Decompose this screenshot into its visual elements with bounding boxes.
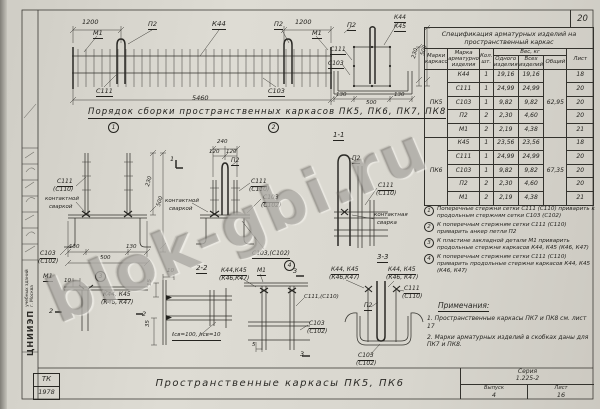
weight-all: 4,60: [518, 110, 543, 124]
item-qty: 1: [479, 83, 493, 97]
weight-all: 19,16: [518, 69, 543, 83]
weight-one: 9,82: [493, 164, 518, 178]
item-sheet: 20: [567, 178, 594, 192]
drawing-label: М1: [257, 268, 266, 276]
series-value: 1.225-2: [516, 376, 539, 383]
assembly-order-heading: Порядок сборки пространственных каркасов…: [88, 108, 446, 119]
spec-row: М122,194,3821: [425, 191, 594, 205]
item-sheet: 21: [567, 123, 594, 137]
item-mark: П2: [448, 110, 480, 124]
drawing-label: (К46, К47): [101, 300, 133, 306]
item-sheet: 21: [567, 191, 594, 205]
spec-row: ПК6К45123,5623,5667,3518: [425, 137, 594, 151]
drawing-label: П2: [352, 156, 360, 164]
drawing-label: П2: [231, 158, 239, 166]
item-mark: К45: [448, 137, 480, 151]
drawing-label: С103,(С102): [252, 251, 290, 259]
weight-one: 9,82: [493, 96, 518, 110]
drawing-label: С103: [328, 61, 344, 69]
drawing-label: 5: [252, 343, 256, 349]
drawing-label: (С110): [249, 187, 269, 193]
item-sheet: 20: [567, 83, 594, 97]
drawing-label: сваркой: [169, 207, 192, 213]
drawing-label: К45: [394, 24, 406, 32]
weight-all: 4,60: [518, 178, 543, 192]
spec-table-title: Спецификация арматурных изделий на прост…: [425, 28, 594, 49]
drawing-label: 130: [394, 93, 405, 99]
item-qty: 2: [479, 191, 493, 205]
org-stamp: ЦНИИЭП учебных зданий г. Москва: [23, 260, 38, 356]
item-mark: С103: [448, 164, 480, 178]
drawing-label: 15: [148, 279, 154, 286]
spec-row: ПК5К44119,1619,1662,9518: [425, 69, 594, 83]
drawing-label: 130: [126, 245, 137, 251]
drawing-label: 500: [100, 256, 111, 262]
drawing-label: (С110): [402, 294, 422, 300]
callout-number: 4: [424, 254, 434, 264]
col-frame-marks: Марки каркасов: [425, 49, 448, 70]
drawing-label: (С102): [38, 259, 58, 265]
drawing-label: 2: [142, 311, 146, 318]
tk-year: 1978: [34, 387, 59, 399]
drawing-label: ℓсв=100, hсв=10: [172, 333, 221, 341]
item-mark: С111: [448, 151, 480, 165]
item-qty: 1: [479, 151, 493, 165]
tk-stamp: ТК 1978: [33, 373, 60, 400]
drawing-label: П2: [274, 21, 283, 30]
item-mark: К44: [448, 69, 480, 83]
tk-label: ТК: [34, 374, 59, 387]
item-sheet: 20: [567, 151, 594, 165]
col-qty: Кол. шт.: [479, 49, 493, 70]
step-2-number: 2: [268, 122, 279, 133]
weight-all: 9,82: [518, 164, 543, 178]
weight-one: 23,56: [493, 137, 518, 151]
spec-row: П222,304,6020: [425, 110, 594, 124]
callout-text: К поперечным стержням сетки С111 (С110) …: [437, 222, 596, 236]
weld-callout: 1Поперечные стержни сетки С111 (С110) пр…: [424, 206, 596, 220]
drawing-label: (С110): [53, 187, 73, 193]
drawing-label: (К46, К47): [386, 275, 418, 281]
drawing-label: 1200: [82, 19, 99, 26]
drawing-label: 2: [49, 308, 53, 315]
issue-value: 4: [492, 391, 496, 399]
drawing-label: К44: [394, 15, 406, 23]
item-mark: М1: [448, 191, 480, 205]
col-sheet: Лист: [567, 49, 594, 70]
group-total-weight: 67,35: [544, 137, 567, 205]
drawing-label: (К46,К47): [329, 275, 359, 281]
item-qty: 1: [479, 69, 493, 83]
spec-row: П222,304,6020: [425, 178, 594, 192]
weld-callout: 2К поперечным стержням сетки С111 (С110)…: [424, 222, 596, 236]
drawing-label: 240: [217, 140, 228, 146]
org-name: ЦНИИЭП: [26, 310, 35, 356]
item-sheet: 20: [567, 110, 594, 124]
col-weight-total: Общий: [544, 56, 567, 69]
item-sheet: 20: [567, 164, 594, 178]
drawing-label: 130: [69, 245, 80, 251]
weight-one: 2,19: [493, 123, 518, 137]
weld-callout: 4К поперечным стержням сетки С111 (С110)…: [424, 254, 596, 275]
drawing-label: М1: [93, 30, 103, 39]
drawing-label: 120: [226, 150, 237, 156]
notes-list: 1. Пространственные каркасы ПК7 и ПК8 см…: [427, 315, 589, 352]
drawing-label: С111: [330, 47, 346, 55]
drawing-label: контактной: [165, 199, 199, 205]
item-mark: М1: [448, 123, 480, 137]
item-mark: С103: [448, 96, 480, 110]
frame-mark: ПК6: [425, 137, 448, 205]
section-3-3-label: 3-3: [377, 254, 388, 263]
weld-callout: 3К пластине закладной детали М1 приварит…: [424, 238, 596, 252]
drawing-sheet: 1200М1П2К44П21200М1С111С1035460П2К44К45С…: [0, 0, 600, 409]
note-item: 2. Марки арматурных изделий в скобках да…: [427, 334, 589, 350]
drawing-label: С103: [268, 88, 285, 97]
spec-row: С111124,9924,9920: [425, 83, 594, 97]
spec-row: С10319,829,8220: [425, 164, 594, 178]
item-qty: 2: [479, 123, 493, 137]
callout-number: 2: [424, 222, 434, 232]
org-line3: г. Москва: [31, 269, 36, 307]
weight-all: 4,38: [518, 191, 543, 205]
item-sheet: 20: [567, 96, 594, 110]
spec-table-body: ПК5К44119,1619,1662,9518С111124,9924,992…: [425, 69, 594, 205]
drawing-label: П2: [148, 21, 157, 30]
weight-one: 2,30: [493, 110, 518, 124]
callout-number: 3: [424, 238, 434, 248]
item-sheet: 18: [567, 137, 594, 151]
drawing-label: 3: [293, 268, 297, 275]
drawing-label: сварка: [377, 221, 397, 227]
drawing-label: П2: [347, 22, 356, 31]
weight-all: 9,82: [518, 96, 543, 110]
item-mark: С111: [448, 83, 480, 97]
item-qty: 1: [479, 96, 493, 110]
drawing-label: 3: [300, 351, 304, 358]
col-weight-one: Одного изделия: [493, 56, 518, 69]
col-weight-all: Всех изделий: [518, 56, 543, 69]
drawing-label: 1200: [295, 19, 312, 26]
drawing-label: (С110): [376, 191, 396, 197]
callout-text: К пластине закладной детали М1 приварить…: [437, 238, 596, 252]
drawing-label: сваркой: [49, 205, 72, 211]
notes-title: Примечания:: [438, 301, 489, 312]
drawing-label: (С102): [356, 361, 376, 367]
spec-row: М122,194,3821: [425, 123, 594, 137]
spec-table-head: Спецификация арматурных изделий на прост…: [425, 28, 594, 70]
drawing-label: 120: [209, 150, 220, 156]
drawing-label: (С102): [307, 329, 327, 335]
drawing-label: 10: [167, 269, 174, 275]
section-1-1-label: 1-1: [333, 132, 344, 141]
drawing-label: (К46,К47): [219, 276, 249, 282]
group-total-weight: 62,95: [544, 69, 567, 137]
callout-text: К поперечным стержням сетки С111 (С110) …: [437, 254, 596, 275]
spec-row: С111124,9924,9920: [425, 151, 594, 165]
drawing-label: П2: [364, 303, 372, 311]
drawing-label: 1: [170, 156, 174, 163]
weight-all: 24,99: [518, 83, 543, 97]
sheet-value: 16: [557, 391, 565, 399]
note-item: 1. Пространственные каркасы ПК7 и ПК8 см…: [427, 315, 589, 331]
title-block: Серия 1.225-2 Выпуск 4 Лист 16: [460, 368, 594, 399]
drawing-label: М1: [43, 273, 53, 282]
drawing-label: (С102): [261, 203, 281, 209]
drawing-label: М1: [312, 30, 322, 39]
item-qty: 2: [479, 110, 493, 124]
drawing-label: контактная: [374, 213, 408, 219]
item-qty: 1: [479, 137, 493, 151]
weight-all: 4,38: [518, 123, 543, 137]
weight-one: 24,99: [493, 151, 518, 165]
weight-all: 24,99: [518, 151, 543, 165]
weight-one: 2,30: [493, 178, 518, 192]
item-qty: 2: [479, 178, 493, 192]
step-3-number: 3: [95, 271, 106, 282]
page-number: 20: [570, 10, 594, 28]
drawing-label: 35: [146, 320, 152, 327]
step-1-number: 1: [108, 122, 119, 133]
item-mark: П2: [448, 178, 480, 192]
drawing-label: 500: [366, 101, 377, 107]
spec-table: Спецификация арматурных изделий на прост…: [424, 27, 594, 206]
item-qty: 1: [479, 164, 493, 178]
weight-one: 24,99: [493, 83, 518, 97]
callout-list: 1Поперечные стержни сетки С111 (С110) пр…: [424, 206, 596, 277]
col-weight: Вес, кг: [493, 49, 567, 56]
drawing-label: контактной: [45, 197, 79, 203]
weight-one: 19,16: [493, 69, 518, 83]
section-2-2-label: 2-2: [196, 265, 207, 274]
callout-number: 1: [424, 206, 434, 216]
drawing-label: К44: [212, 21, 226, 30]
sheet-title: Пространственные каркасы ПК5, ПК6: [110, 371, 450, 395]
weight-all: 23,56: [518, 137, 543, 151]
drawing-label: 5460: [192, 95, 209, 102]
callout-text: Поперечные стержни сетки С111 (С110) при…: [437, 206, 596, 220]
col-item: Марка арматурного изделия: [448, 49, 480, 70]
weight-one: 2,19: [493, 191, 518, 205]
drawing-label: 10: [64, 279, 71, 285]
item-sheet: 18: [567, 69, 594, 83]
drawing-label: С111,(С110): [304, 295, 339, 301]
frame-mark: ПК5: [425, 69, 448, 137]
spec-row: С10319,829,8220: [425, 96, 594, 110]
drawing-label: 130: [336, 93, 347, 99]
drawing-label: С111: [96, 88, 113, 97]
